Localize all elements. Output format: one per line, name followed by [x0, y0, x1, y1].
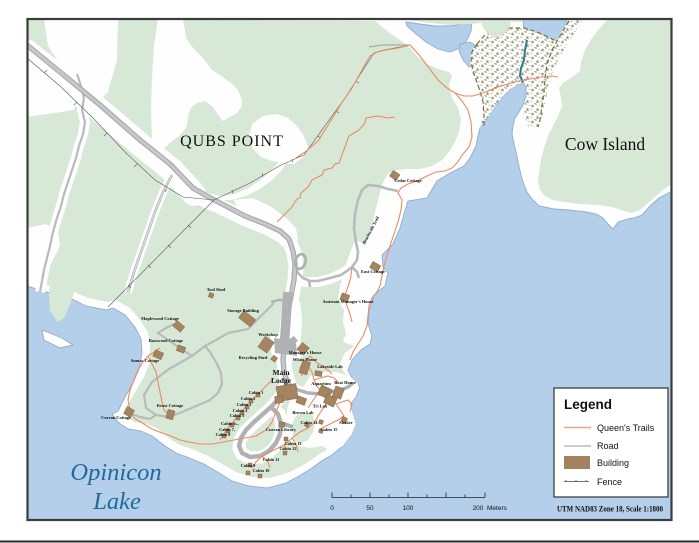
svg-text:Queen's Trails: Queen's Trails	[597, 423, 655, 433]
svg-text:Lake: Lake	[92, 488, 141, 515]
svg-text:Building: Building	[597, 458, 629, 468]
svg-text:Cabin 5: Cabin 5	[230, 413, 246, 418]
svg-text:Lakeside Lab: Lakeside Lab	[317, 364, 343, 369]
svg-text:Recycling Shed: Recycling Shed	[239, 355, 268, 360]
svg-text:Aquarium: Aquarium	[311, 381, 331, 386]
svg-text:East Cottage: East Cottage	[361, 269, 385, 274]
svg-text:0: 0	[330, 505, 334, 512]
svg-text:Legend: Legend	[564, 397, 612, 412]
svg-text:Lodge: Lodge	[271, 376, 292, 385]
svg-text:Curran Library: Curran Library	[266, 427, 297, 432]
svg-text:Curran Cottage: Curran Cottage	[101, 415, 131, 420]
svg-text:QUBS POINT: QUBS POINT	[180, 133, 284, 150]
svg-text:Cedar Cottage: Cedar Cottage	[394, 178, 421, 183]
svg-text:Tri Lab: Tri Lab	[313, 404, 328, 409]
svg-text:Cabin 6...: Cabin 6...	[221, 421, 239, 426]
svg-text:Opinicon: Opinicon	[70, 459, 161, 486]
svg-text:Basswood Cottage: Basswood Cottage	[149, 338, 183, 343]
svg-text:Cabin 15: Cabin 15	[321, 427, 339, 432]
svg-text:Cabin 2: Cabin 2	[241, 396, 256, 401]
svg-text:Workshop: Workshop	[258, 332, 278, 337]
svg-text:Brown Lab: Brown Lab	[292, 410, 314, 415]
svg-text:Keast Cottage: Keast Cottage	[157, 403, 184, 408]
svg-text:Cabin 11: Cabin 11	[263, 457, 280, 462]
svg-text:White House: White House	[293, 357, 317, 362]
svg-text:Road: Road	[597, 441, 619, 451]
svg-text:50: 50	[366, 505, 374, 512]
svg-text:Boat House: Boat House	[334, 380, 356, 385]
svg-text:Storage Building: Storage Building	[227, 308, 259, 313]
svg-text:Sumac Cottage: Sumac Cottage	[131, 358, 159, 363]
svg-text:Cabin 8: Cabin 8	[216, 432, 232, 437]
svg-text:Cabin 10: Cabin 10	[253, 468, 271, 473]
svg-text:Cabin 3: Cabin 3	[237, 402, 253, 407]
svg-text:Maplewood Cottage: Maplewood Cottage	[141, 316, 179, 321]
svg-text:Meters: Meters	[487, 505, 508, 512]
svg-text:Assistant Manager's House: Assistant Manager's House	[323, 299, 374, 304]
svg-text:Tool Shed: Tool Shed	[207, 287, 226, 292]
svg-text:200: 200	[473, 505, 484, 512]
svg-text:Fence: Fence	[597, 477, 622, 487]
svg-text:Cabin 14: Cabin 14	[301, 420, 319, 425]
svg-text:UTM NAD83 Zone 18, Scale 1:180: UTM NAD83 Zone 18, Scale 1:1800	[557, 504, 663, 514]
svg-text:Manager's House: Manager's House	[289, 350, 322, 355]
svg-text:Cabin 12: Cabin 12	[280, 446, 297, 451]
svg-text:Shaker: Shaker	[339, 420, 352, 425]
svg-text:Cabin 1: Cabin 1	[249, 390, 264, 395]
svg-text:100: 100	[403, 505, 414, 512]
svg-text:Cow Island: Cow Island	[565, 134, 645, 154]
